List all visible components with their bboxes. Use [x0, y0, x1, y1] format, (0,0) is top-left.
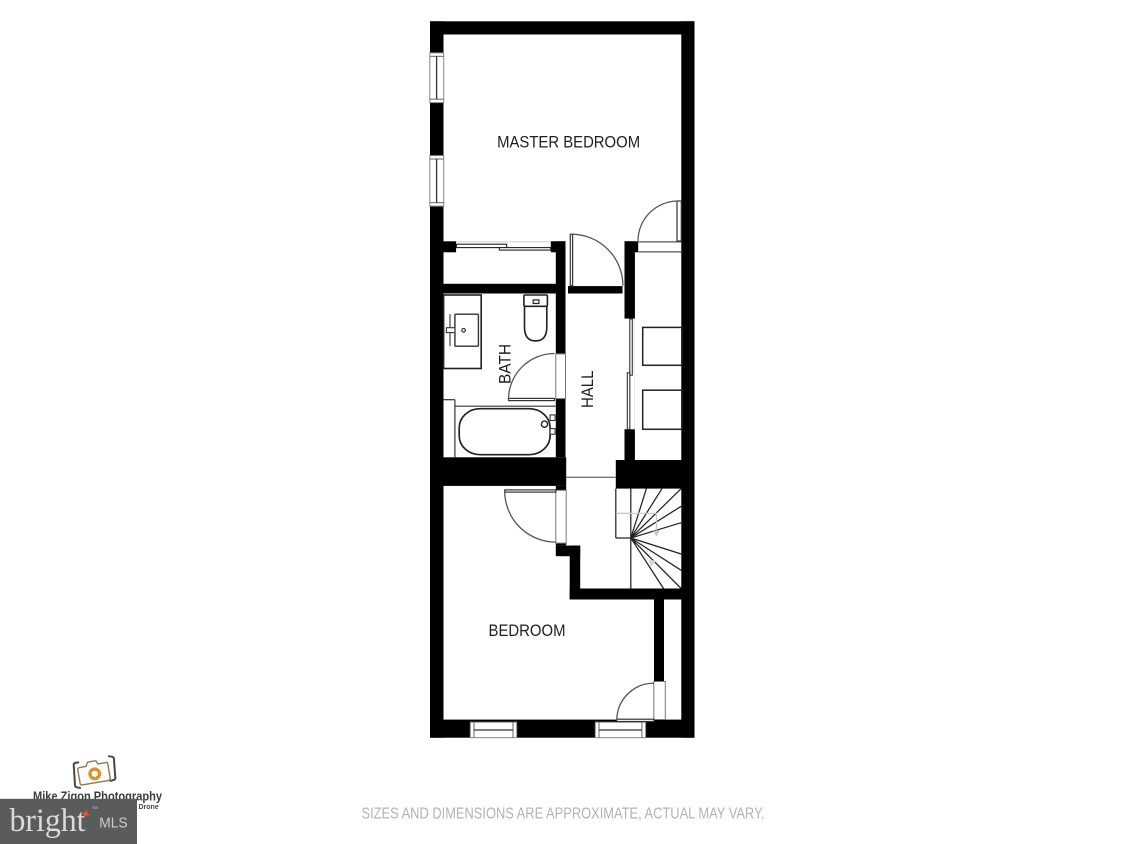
- svg-text:SIZES AND DIMENSIONS ARE APPRO: SIZES AND DIMENSIONS ARE APPROXIMATE, AC…: [362, 806, 765, 823]
- svg-text:MASTER BEDROOM: MASTER BEDROOM: [497, 133, 640, 152]
- svg-text:BATH: BATH: [496, 344, 515, 384]
- svg-text:HALL: HALL: [578, 371, 597, 409]
- svg-text:MLS: MLS: [99, 816, 127, 832]
- svg-text:Drone: Drone: [138, 804, 158, 811]
- svg-text:bright: bright: [10, 803, 86, 839]
- svg-text:BEDROOM: BEDROOM: [489, 621, 566, 640]
- svg-text:™: ™: [92, 806, 99, 813]
